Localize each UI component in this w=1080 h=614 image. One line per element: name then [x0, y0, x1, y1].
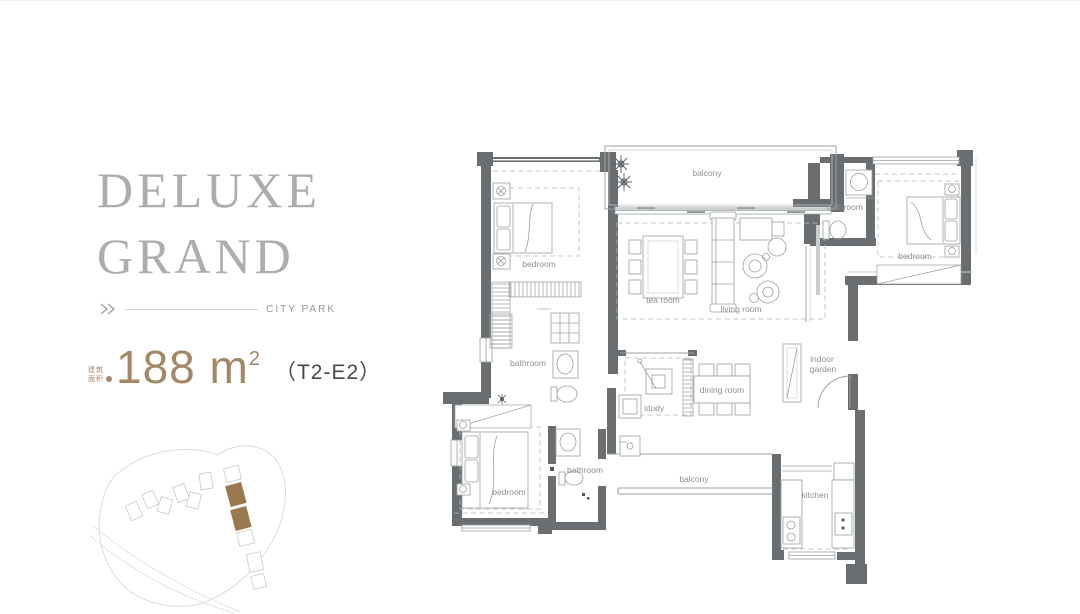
- room-label-bedroom-top-right: bedroom: [898, 251, 932, 261]
- floor-plan: balcony bathroom bedroom bedroom tea roo…: [437, 126, 1067, 614]
- room-label-tea-room: tea room: [646, 295, 680, 305]
- room-label-balcony-top: balcony: [692, 168, 722, 178]
- room-label-living-room: living room: [720, 304, 761, 314]
- entry-door-arc: [818, 376, 850, 408]
- area-superscript: 2: [249, 348, 261, 370]
- bed-top-right: [907, 184, 960, 257]
- living-room-sofa: [710, 212, 820, 312]
- indoor-garden-planter: [783, 344, 801, 402]
- room-label-bathroom-bottom: bathroom: [567, 465, 603, 475]
- page-title: DELUXE GRAND: [97, 157, 321, 289]
- floorplan-page: DELUXE GRAND CITY PARK 建筑 面积 188 m2 （T2-…: [0, 0, 1080, 614]
- room-label-kitchen: kitchen: [802, 490, 829, 500]
- room-label-study: study: [644, 403, 665, 413]
- room-label-balcony-bottom: balcony: [679, 474, 709, 484]
- site-road-2: [90, 536, 234, 613]
- site-road: [92, 525, 240, 612]
- tagline-rule: [125, 309, 258, 310]
- title-line-2: GRAND: [97, 223, 321, 289]
- study-desk: [638, 359, 672, 394]
- room-label-bedroom-top-left: bedroom: [522, 259, 556, 269]
- area-tag-line1: 建筑: [88, 366, 104, 375]
- unit-code: （T2-E2）: [275, 356, 381, 386]
- tea-room-table: [629, 236, 697, 298]
- area-tag-line2: 面积: [88, 375, 104, 384]
- room-label-indoor: indoor: [810, 354, 834, 364]
- area-row: 建筑 面积 188 m2 （T2-E2）: [88, 337, 381, 389]
- tagline-row: CITY PARK: [100, 303, 336, 315]
- site-highlighted-building: [225, 482, 251, 530]
- area-tag: 建筑 面积: [88, 366, 104, 389]
- room-label-bathroom-mid-left: bathroom: [510, 358, 546, 368]
- room-label-bathroom-top-right: bathroom: [827, 202, 863, 212]
- site-plan: [90, 429, 302, 613]
- room-label-garden: garden: [810, 364, 837, 374]
- kitchen-counters: [781, 463, 854, 548]
- room-label-bedroom-bottom-left: bedroom: [492, 487, 526, 497]
- utility-units: [619, 395, 641, 456]
- room-label-dining-room: dining room: [700, 385, 744, 395]
- tagline-text: CITY PARK: [266, 304, 336, 315]
- area-dot-icon: [106, 376, 112, 382]
- double-chevron-icon: [100, 303, 117, 315]
- title-line-1: DELUXE: [97, 157, 321, 223]
- area-value: 188 m2: [116, 337, 261, 389]
